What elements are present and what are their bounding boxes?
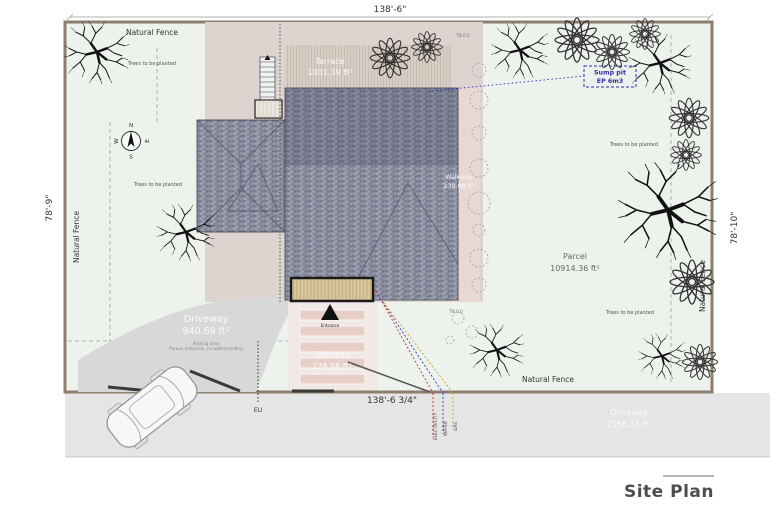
natural-fence-label-left: Natural Fence <box>72 211 81 263</box>
site-plan-canvas: N S W E Natural Fence Natural Fence Natu… <box>0 0 776 506</box>
trees-planted-label-right-upper: Trees to be planted <box>609 142 658 148</box>
sump-pit-label-1: Sump pit <box>594 70 626 77</box>
sump-pit-label-2: EP 6m3 <box>597 78 623 85</box>
trees-planted-label-right-lower: Trees to be planted <box>605 310 654 316</box>
dimension-top: 138'-6" <box>374 5 407 15</box>
compass-south-label: S <box>129 155 133 161</box>
front-walkway-area: 278.88 ft² <box>312 362 352 371</box>
driveway-name: Driveway <box>184 314 229 325</box>
entrance-label: Entrance <box>321 323 340 328</box>
terrace-area: 1031.39 ft² <box>308 68 353 77</box>
side-walkway-name: Walkway <box>445 174 473 181</box>
side-walkway-area: 239.98 ft² <box>443 183 475 190</box>
natural-fence-label-bottom: Natural Fence <box>522 375 574 384</box>
natural-fence-label-top: Natural Fence <box>126 28 178 37</box>
entrance-porch <box>291 278 373 301</box>
water-label: WATER <box>443 421 449 436</box>
street-driveway-area: 2156.73 ft² <box>607 420 652 429</box>
natural-fence-label-right: Natural Fence <box>698 260 707 312</box>
parcel-area: 10914.36 ft² <box>550 264 600 273</box>
electricity-label: ELECTRICITY <box>433 412 439 440</box>
parcel-name: Parcel <box>563 252 587 261</box>
eu-label: EU <box>254 407 262 414</box>
dimension-right: 78'-10" <box>730 212 740 245</box>
street-driveway-name: Driveway <box>610 408 648 417</box>
terrace-name: Terrace <box>314 57 344 66</box>
tn-marker-top: TN 0.0 <box>455 33 470 38</box>
compass-north-label: N <box>129 123 133 129</box>
driveway-note-2: Porous materials, no waterproofing <box>169 346 243 351</box>
site-plan-drawing: N S W E Natural Fence Natural Fence Natu… <box>0 0 776 506</box>
gas-label: GAS <box>453 422 459 431</box>
dimension-left: 78'-9" <box>45 194 55 221</box>
compass-east-label: E <box>145 139 151 143</box>
page-title: Site Plan <box>624 482 714 502</box>
dimension-bottom: 138'-6 3/4" <box>367 396 417 406</box>
trees-planted-label-left: Trees to be planted <box>133 182 182 188</box>
compass-west-label: W <box>114 138 120 144</box>
driveway-area: 940.69 ft² <box>183 326 230 337</box>
front-walkway-name: Walkway <box>314 350 350 359</box>
tn-marker-bottom: TN 0.0 <box>448 309 463 314</box>
trees-planted-label-top-left: Trees to be planted <box>127 61 176 67</box>
